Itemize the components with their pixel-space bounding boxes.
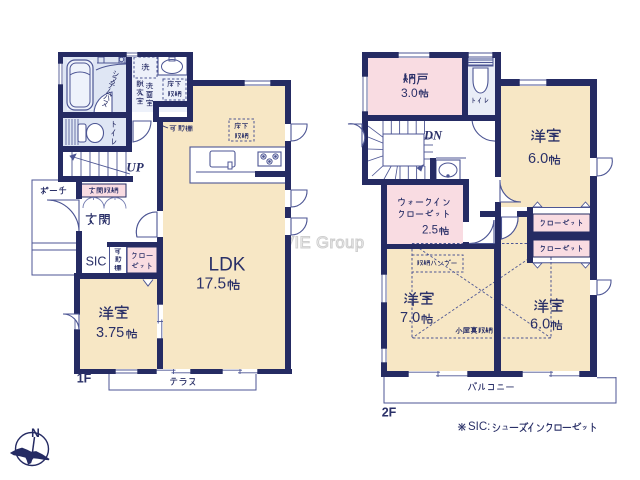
svg-text:2F: 2F <box>382 406 397 420</box>
svg-text:DN: DN <box>423 129 443 143</box>
svg-text:LDK: LDK <box>209 255 246 276</box>
svg-text:6.0: 6.0 <box>528 151 548 167</box>
svg-text:17.5: 17.5 <box>196 276 226 293</box>
svg-text:SIC:: SIC: <box>468 421 490 433</box>
svg-text:VIE Group: VIE Group <box>283 234 365 252</box>
svg-text:2.5: 2.5 <box>422 225 438 237</box>
svg-text:3.75: 3.75 <box>96 325 124 341</box>
svg-text:3.0: 3.0 <box>401 86 418 100</box>
svg-text:1F: 1F <box>77 372 92 386</box>
svg-text:6.0: 6.0 <box>530 317 550 333</box>
svg-text:SIC: SIC <box>86 255 107 269</box>
svg-text:UP: UP <box>126 160 144 175</box>
svg-text:N: N <box>31 426 40 440</box>
svg-text:7.0: 7.0 <box>400 310 420 326</box>
